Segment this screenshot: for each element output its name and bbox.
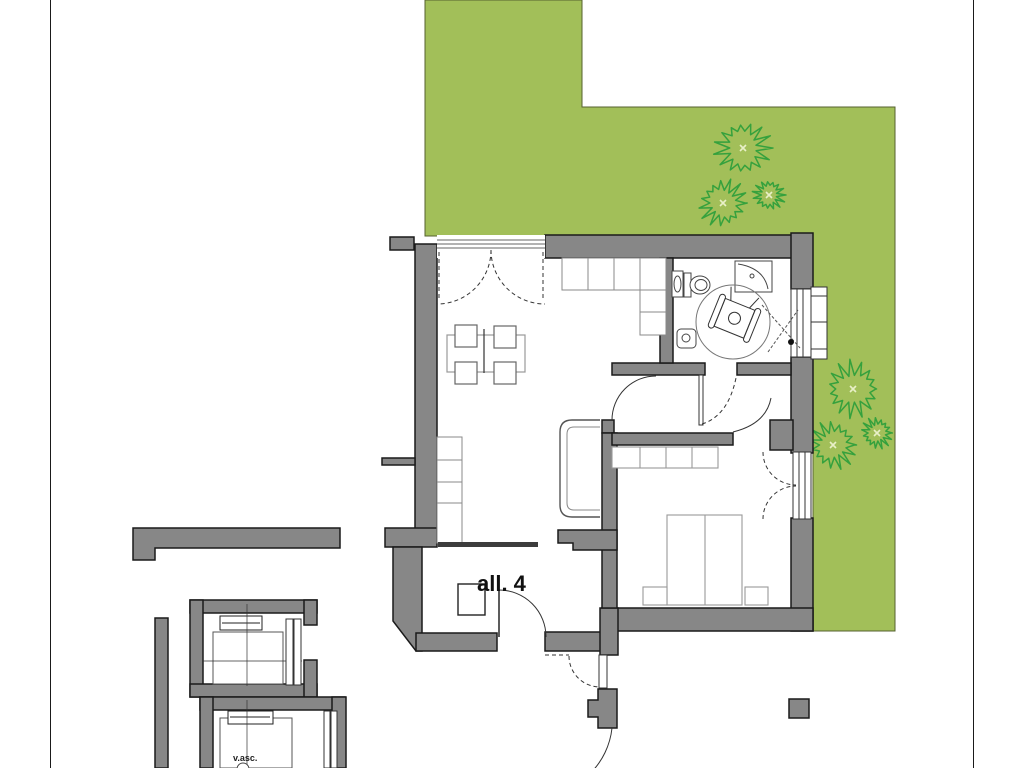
shower-drain xyxy=(750,274,754,278)
bathroom-door-leaf xyxy=(699,375,703,425)
bathroom-door-arc xyxy=(702,378,736,424)
bidet-basin xyxy=(682,334,690,342)
nightstand-right xyxy=(745,587,768,605)
elevator1-car xyxy=(213,632,283,684)
wall-connector xyxy=(600,608,618,655)
elevator2-door-panel xyxy=(324,711,330,768)
elevator1-wall-right-top xyxy=(304,600,317,625)
bathroom-shutter-box xyxy=(811,287,827,359)
wardrobe xyxy=(612,447,718,468)
wall-garden-post xyxy=(789,699,809,718)
wall-hallway-north-right xyxy=(737,363,791,375)
wall-bedroom-south xyxy=(602,608,813,631)
living-french-door-opening xyxy=(437,235,545,258)
walls xyxy=(133,233,813,768)
elevator1-wall-bottom xyxy=(190,684,317,697)
wheelchair-wheel-left xyxy=(707,293,726,329)
wheelchair-head xyxy=(727,310,743,326)
bathroom-cross-dot xyxy=(788,339,794,345)
bedroom-french-door-swing xyxy=(763,452,796,519)
wall-divider-bump xyxy=(558,530,617,550)
wall-bedroom-north xyxy=(612,433,733,445)
elevator1-door-panel xyxy=(294,619,301,685)
elevator1-wall-top xyxy=(190,600,317,613)
sofa xyxy=(560,420,600,517)
living-hall-door-arc xyxy=(612,376,656,420)
wall-top-left-cap xyxy=(390,237,414,250)
elevator-shaft-label: v.asc. xyxy=(233,753,257,763)
living-french-door-swing xyxy=(437,250,545,304)
wall-hallway-step xyxy=(770,420,793,450)
wall-entry-south-left xyxy=(416,633,497,651)
wheelchair-turning-circle xyxy=(696,285,770,359)
toilet-bowl-inner xyxy=(695,280,707,291)
apartment-label: all. 4 xyxy=(477,571,527,596)
entry-door-arc xyxy=(499,590,546,637)
bathroom-sink-basin xyxy=(674,276,681,292)
kitchen-counter-left xyxy=(437,437,462,543)
chair xyxy=(494,326,516,348)
bathroom-window xyxy=(791,289,811,357)
exterior-door-swing xyxy=(545,655,600,687)
floor-plan-canvas: all. 4 v.asc. xyxy=(0,0,1024,768)
wall-east-mid xyxy=(791,357,813,453)
kitchen xyxy=(437,258,666,547)
kitchen-counter-edge xyxy=(438,542,538,547)
wall-entry-south-right xyxy=(545,632,602,651)
bathroom xyxy=(672,261,800,359)
wall-hallway-north-left xyxy=(612,363,705,375)
elevator1-wall-left xyxy=(190,600,203,697)
elevator1-door-panel xyxy=(286,619,293,685)
bedroom-furniture xyxy=(612,447,768,605)
bedroom-door-arc xyxy=(733,398,771,432)
elevator1-wall-right-bottom xyxy=(304,660,317,697)
bedroom-french-threshold xyxy=(793,452,811,519)
exterior-door-leaf xyxy=(599,655,607,688)
wall-east-upper xyxy=(791,233,813,289)
wall-entry-jog xyxy=(385,528,437,547)
dining-set xyxy=(447,325,525,384)
elevator2-wall-top xyxy=(200,697,345,710)
elevator2-door-panel xyxy=(331,711,337,768)
wall-site-L xyxy=(133,528,340,560)
nightstand-left xyxy=(643,587,667,605)
chair xyxy=(494,362,516,384)
wall-site-bar xyxy=(155,618,168,768)
wheelchair-seat xyxy=(714,298,755,338)
wall-living-west xyxy=(415,244,437,530)
wall-hallway-west xyxy=(602,420,614,433)
wall-entry-pillar xyxy=(588,689,617,728)
wall-north-band xyxy=(545,235,793,258)
chair xyxy=(455,325,477,347)
elevator2-wall-left xyxy=(200,697,213,768)
gate-swing-arc xyxy=(541,728,612,768)
sofa-outline xyxy=(560,420,600,517)
chair xyxy=(455,362,477,384)
wall-fin-west xyxy=(382,458,415,465)
wheelchair-wheel-right xyxy=(743,308,762,344)
